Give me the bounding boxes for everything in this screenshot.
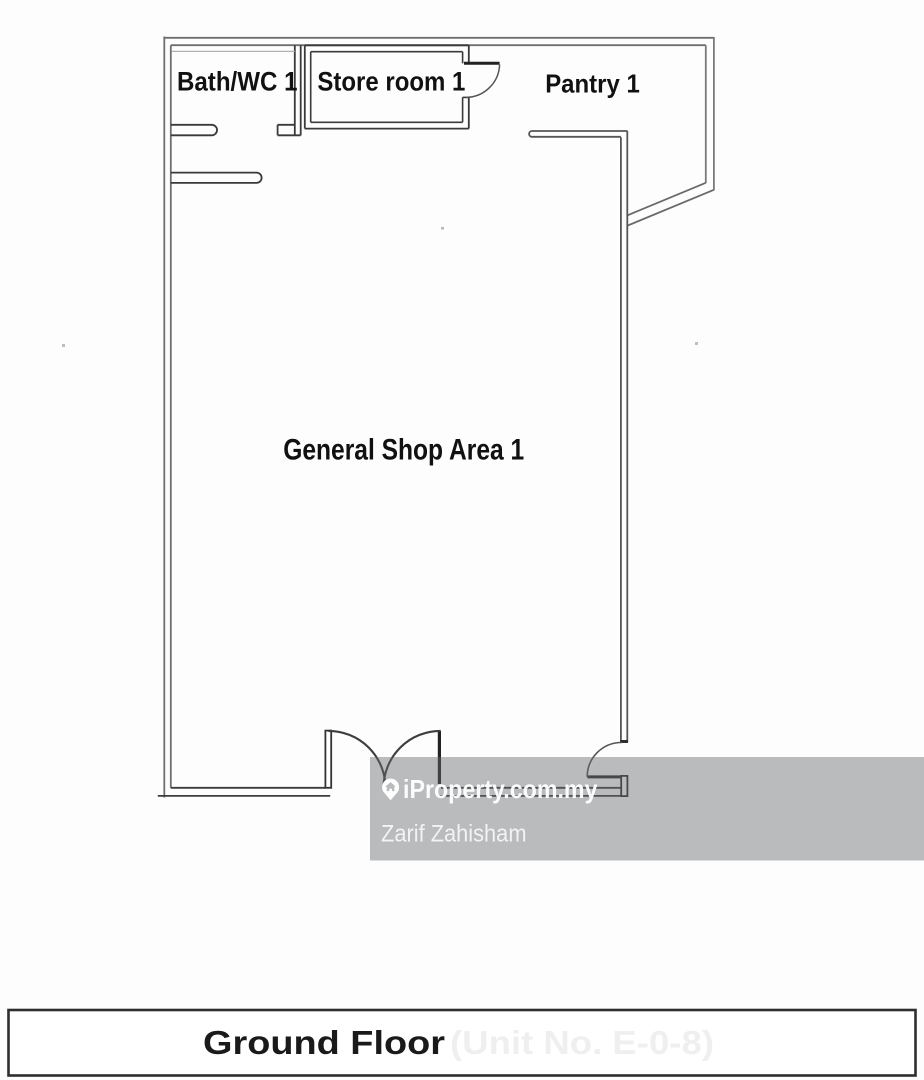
svg-text:iProperty.com.my: iProperty.com.my: [403, 774, 598, 804]
svg-text:General Shop Area 1: General Shop Area 1: [283, 434, 524, 467]
svg-text:(Unit No. E-0-8): (Unit No. E-0-8): [450, 1024, 714, 1061]
svg-text:Ground Floor: Ground Floor: [203, 1024, 445, 1061]
svg-text:Store room 1: Store room 1: [317, 66, 465, 96]
svg-text:Zarif Zahisham: Zarif Zahisham: [381, 821, 527, 848]
svg-text:Pantry 1: Pantry 1: [545, 69, 640, 99]
svg-text:Bath/WC 1: Bath/WC 1: [177, 67, 298, 97]
